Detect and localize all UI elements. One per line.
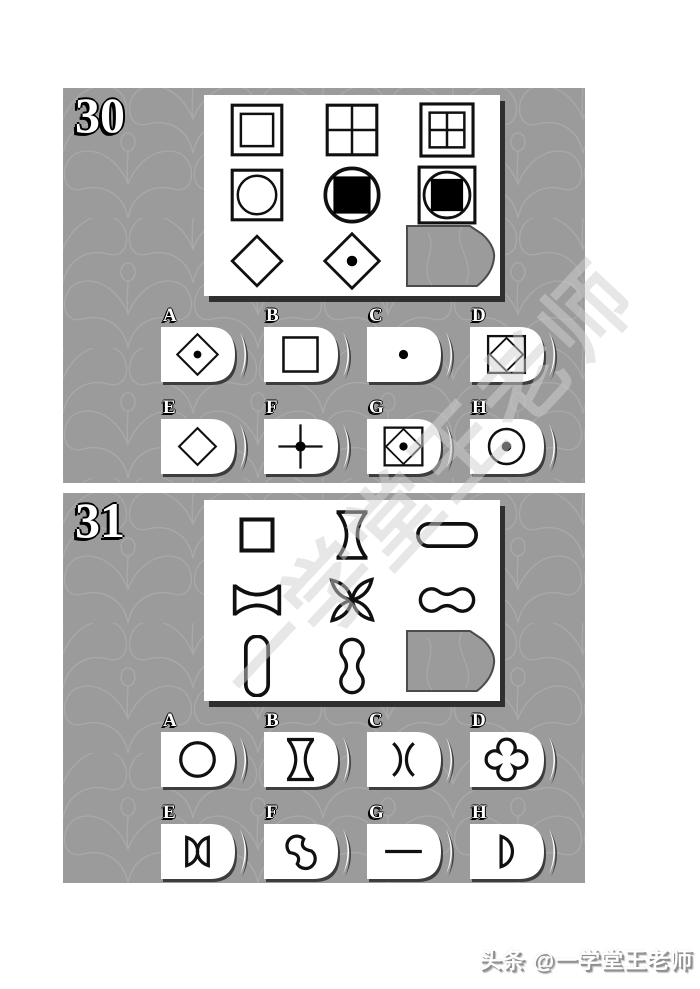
option-shape-concave-arcs[interactable] <box>366 731 456 789</box>
option-letter: F <box>266 398 366 418</box>
option-shape-quatrefoil[interactable] <box>469 731 559 789</box>
missing-cell-placeholder <box>406 630 496 697</box>
option-shape-bowtie[interactable] <box>160 823 250 881</box>
matrix-cell-spool-horizontal <box>210 568 305 634</box>
matrix-cell-square-double-cross <box>399 97 494 163</box>
option-letter: C <box>369 711 469 731</box>
question-number: 30 <box>75 90 125 140</box>
option-G[interactable]: G <box>366 398 469 476</box>
option-E[interactable]: E <box>160 803 263 881</box>
option-A[interactable]: A <box>160 306 263 384</box>
matrix-cell-square-circle-blacksquare <box>399 163 494 229</box>
option-letter: H <box>472 803 572 823</box>
matrix-cell-square-double <box>210 97 305 163</box>
option-C[interactable]: C <box>366 306 469 384</box>
puzzle-matrix-box <box>204 95 500 296</box>
option-shape-square-diamond-dot[interactable] <box>366 418 456 476</box>
option-B[interactable]: B <box>263 306 366 384</box>
option-letter: B <box>266 711 366 731</box>
option-letter: B <box>266 306 366 326</box>
option-shape-spool-vertical[interactable] <box>263 731 353 789</box>
matrix-cell-bone-vertical <box>305 633 400 699</box>
option-letter: F <box>266 803 366 823</box>
option-letter: D <box>472 711 572 731</box>
option-H[interactable]: H <box>469 803 572 881</box>
option-D[interactable]: D <box>469 306 572 384</box>
option-E[interactable]: E <box>160 398 263 476</box>
option-D[interactable]: D <box>469 711 572 789</box>
missing-cell-placeholder <box>406 225 496 292</box>
option-C[interactable]: C <box>366 711 469 789</box>
option-letter: E <box>163 803 263 823</box>
option-letter: E <box>163 398 263 418</box>
matrix-cell-four-petal-x <box>305 568 400 634</box>
option-shape-horizontal-line[interactable] <box>366 823 456 881</box>
matrix-cell-capsule-horizontal <box>399 502 494 568</box>
page: 30 ABCDEFGH <box>0 0 700 989</box>
matrix-cell-square-cross <box>305 97 400 163</box>
option-G[interactable]: G <box>366 803 469 881</box>
matrix-cell-diamond <box>210 228 305 294</box>
matrix-cell-circle-blacksquare <box>305 163 400 229</box>
option-shape-diamond[interactable] <box>160 418 250 476</box>
option-letter: D <box>472 306 572 326</box>
matrix-cell-spool-vertical <box>305 502 400 568</box>
matrix-cell-square-circle <box>210 163 305 229</box>
question-number: 31 <box>75 495 125 545</box>
question-panel-30: 30 ABCDEFGH <box>63 88 585 483</box>
option-A[interactable]: A <box>160 711 263 789</box>
option-F[interactable]: F <box>263 803 366 881</box>
option-shape-diamond-dot[interactable] <box>160 326 250 384</box>
option-shape-circle-dot[interactable] <box>469 418 559 476</box>
option-shape-cross-dot[interactable] <box>263 418 353 476</box>
matrix-cell-small-square <box>210 502 305 568</box>
option-shape-pinwheel[interactable] <box>263 823 353 881</box>
caption: 头条 @一学堂王老师 <box>479 943 693 975</box>
option-F[interactable]: F <box>263 398 366 476</box>
option-letter: A <box>163 306 263 326</box>
options-grid: ABCDEFGH <box>160 306 572 476</box>
option-shape-square-diamond[interactable] <box>469 326 559 384</box>
question-panel-31: 31 ABCDEFGH <box>63 493 585 883</box>
matrix-cell-diamond-dot <box>305 228 400 294</box>
matrix-cell-bone-horizontal <box>399 568 494 634</box>
matrix-cell-capsule-vertical <box>210 633 305 699</box>
option-letter: G <box>369 803 469 823</box>
option-B[interactable]: B <box>263 711 366 789</box>
option-shape-half-circle-d[interactable] <box>469 823 559 881</box>
option-shape-square[interactable] <box>263 326 353 384</box>
option-letter: C <box>369 306 469 326</box>
options-grid: ABCDEFGH <box>160 711 572 881</box>
option-letter: A <box>163 711 263 731</box>
option-shape-dot[interactable] <box>366 326 456 384</box>
option-letter: H <box>472 398 572 418</box>
option-shape-circle[interactable] <box>160 731 250 789</box>
puzzle-matrix-box <box>204 500 500 701</box>
option-H[interactable]: H <box>469 398 572 476</box>
option-letter: G <box>369 398 469 418</box>
